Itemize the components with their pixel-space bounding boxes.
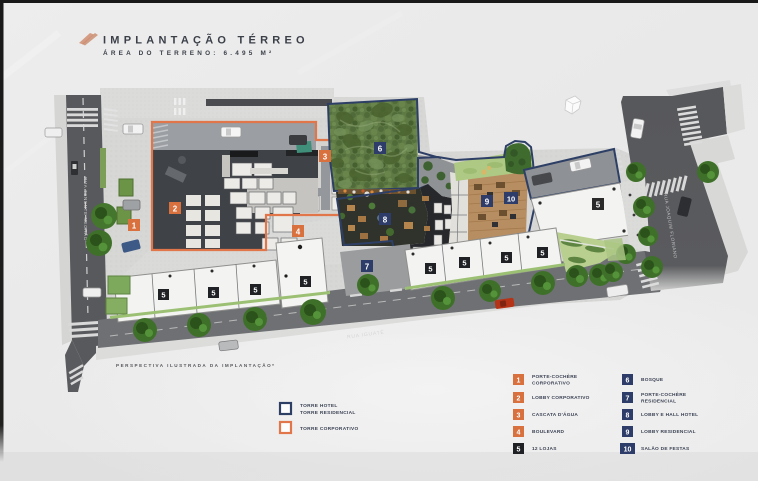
svg-text:2: 2	[173, 205, 178, 214]
svg-text:2: 2	[517, 396, 521, 403]
svg-text:TORRE HOTEL: TORRE HOTEL	[300, 403, 338, 409]
svg-text:9: 9	[485, 198, 490, 207]
svg-text:6: 6	[626, 378, 630, 385]
svg-text:5: 5	[303, 278, 307, 287]
svg-text:10: 10	[624, 447, 632, 454]
svg-text:SALÃO DE FESTAS: SALÃO DE FESTAS	[641, 445, 690, 452]
svg-text:12 LOJAS: 12 LOJAS	[532, 446, 557, 452]
svg-text:LOBBY CORPORATIVO: LOBBY CORPORATIVO	[532, 395, 590, 401]
svg-text:LOBBY E HALL HOTEL: LOBBY E HALL HOTEL	[641, 412, 698, 418]
svg-text:1: 1	[132, 222, 137, 231]
svg-text:3: 3	[323, 153, 328, 162]
svg-text:5: 5	[462, 259, 466, 268]
svg-text:5: 5	[504, 254, 508, 263]
svg-text:RUA TENENTE NEGRÃO: RUA TENENTE NEGRÃO	[83, 177, 89, 241]
svg-text:TORRE CORPORATIVO: TORRE CORPORATIVO	[300, 426, 359, 432]
svg-text:9: 9	[626, 430, 630, 437]
svg-text:IMPLANTAÇÃO TÉRREO: IMPLANTAÇÃO TÉRREO	[103, 34, 309, 47]
svg-text:5: 5	[517, 447, 521, 454]
svg-text:4: 4	[517, 430, 521, 437]
svg-text:5: 5	[253, 286, 257, 295]
svg-text:5: 5	[211, 289, 215, 298]
svg-text:5: 5	[161, 291, 165, 300]
svg-text:3: 3	[517, 413, 521, 420]
svg-text:PERSPECTIVA ILUSTRADA DA IMPLA: PERSPECTIVA ILUSTRADA DA IMPLANTAÇÃO*	[116, 362, 275, 368]
svg-text:BOSQUE: BOSQUE	[641, 377, 664, 383]
svg-text:5: 5	[428, 265, 432, 274]
svg-text:CORPORATIVO: CORPORATIVO	[532, 381, 570, 387]
svg-text:TORRE RESIDENCIAL: TORRE RESIDENCIAL	[300, 410, 356, 416]
svg-text:6: 6	[378, 145, 383, 154]
svg-text:CASCATA D'ÁGUA: CASCATA D'ÁGUA	[532, 411, 578, 418]
svg-text:4: 4	[296, 228, 301, 237]
svg-text:LOBBY RESIDENCIAL: LOBBY RESIDENCIAL	[641, 429, 696, 435]
svg-text:8: 8	[626, 413, 630, 420]
svg-text:ÁREA DO TERRENO: 6.495 M²: ÁREA DO TERRENO: 6.495 M²	[103, 48, 274, 57]
svg-text:5: 5	[540, 249, 544, 258]
svg-text:10: 10	[507, 195, 515, 204]
svg-text:7: 7	[626, 396, 630, 403]
svg-text:1: 1	[517, 378, 521, 385]
svg-text:7: 7	[365, 263, 370, 272]
svg-text:RESIDENCIAL: RESIDENCIAL	[641, 399, 676, 405]
svg-text:5: 5	[596, 201, 601, 210]
svg-text:8: 8	[383, 216, 388, 225]
svg-text:BOULEVARD: BOULEVARD	[532, 429, 565, 435]
